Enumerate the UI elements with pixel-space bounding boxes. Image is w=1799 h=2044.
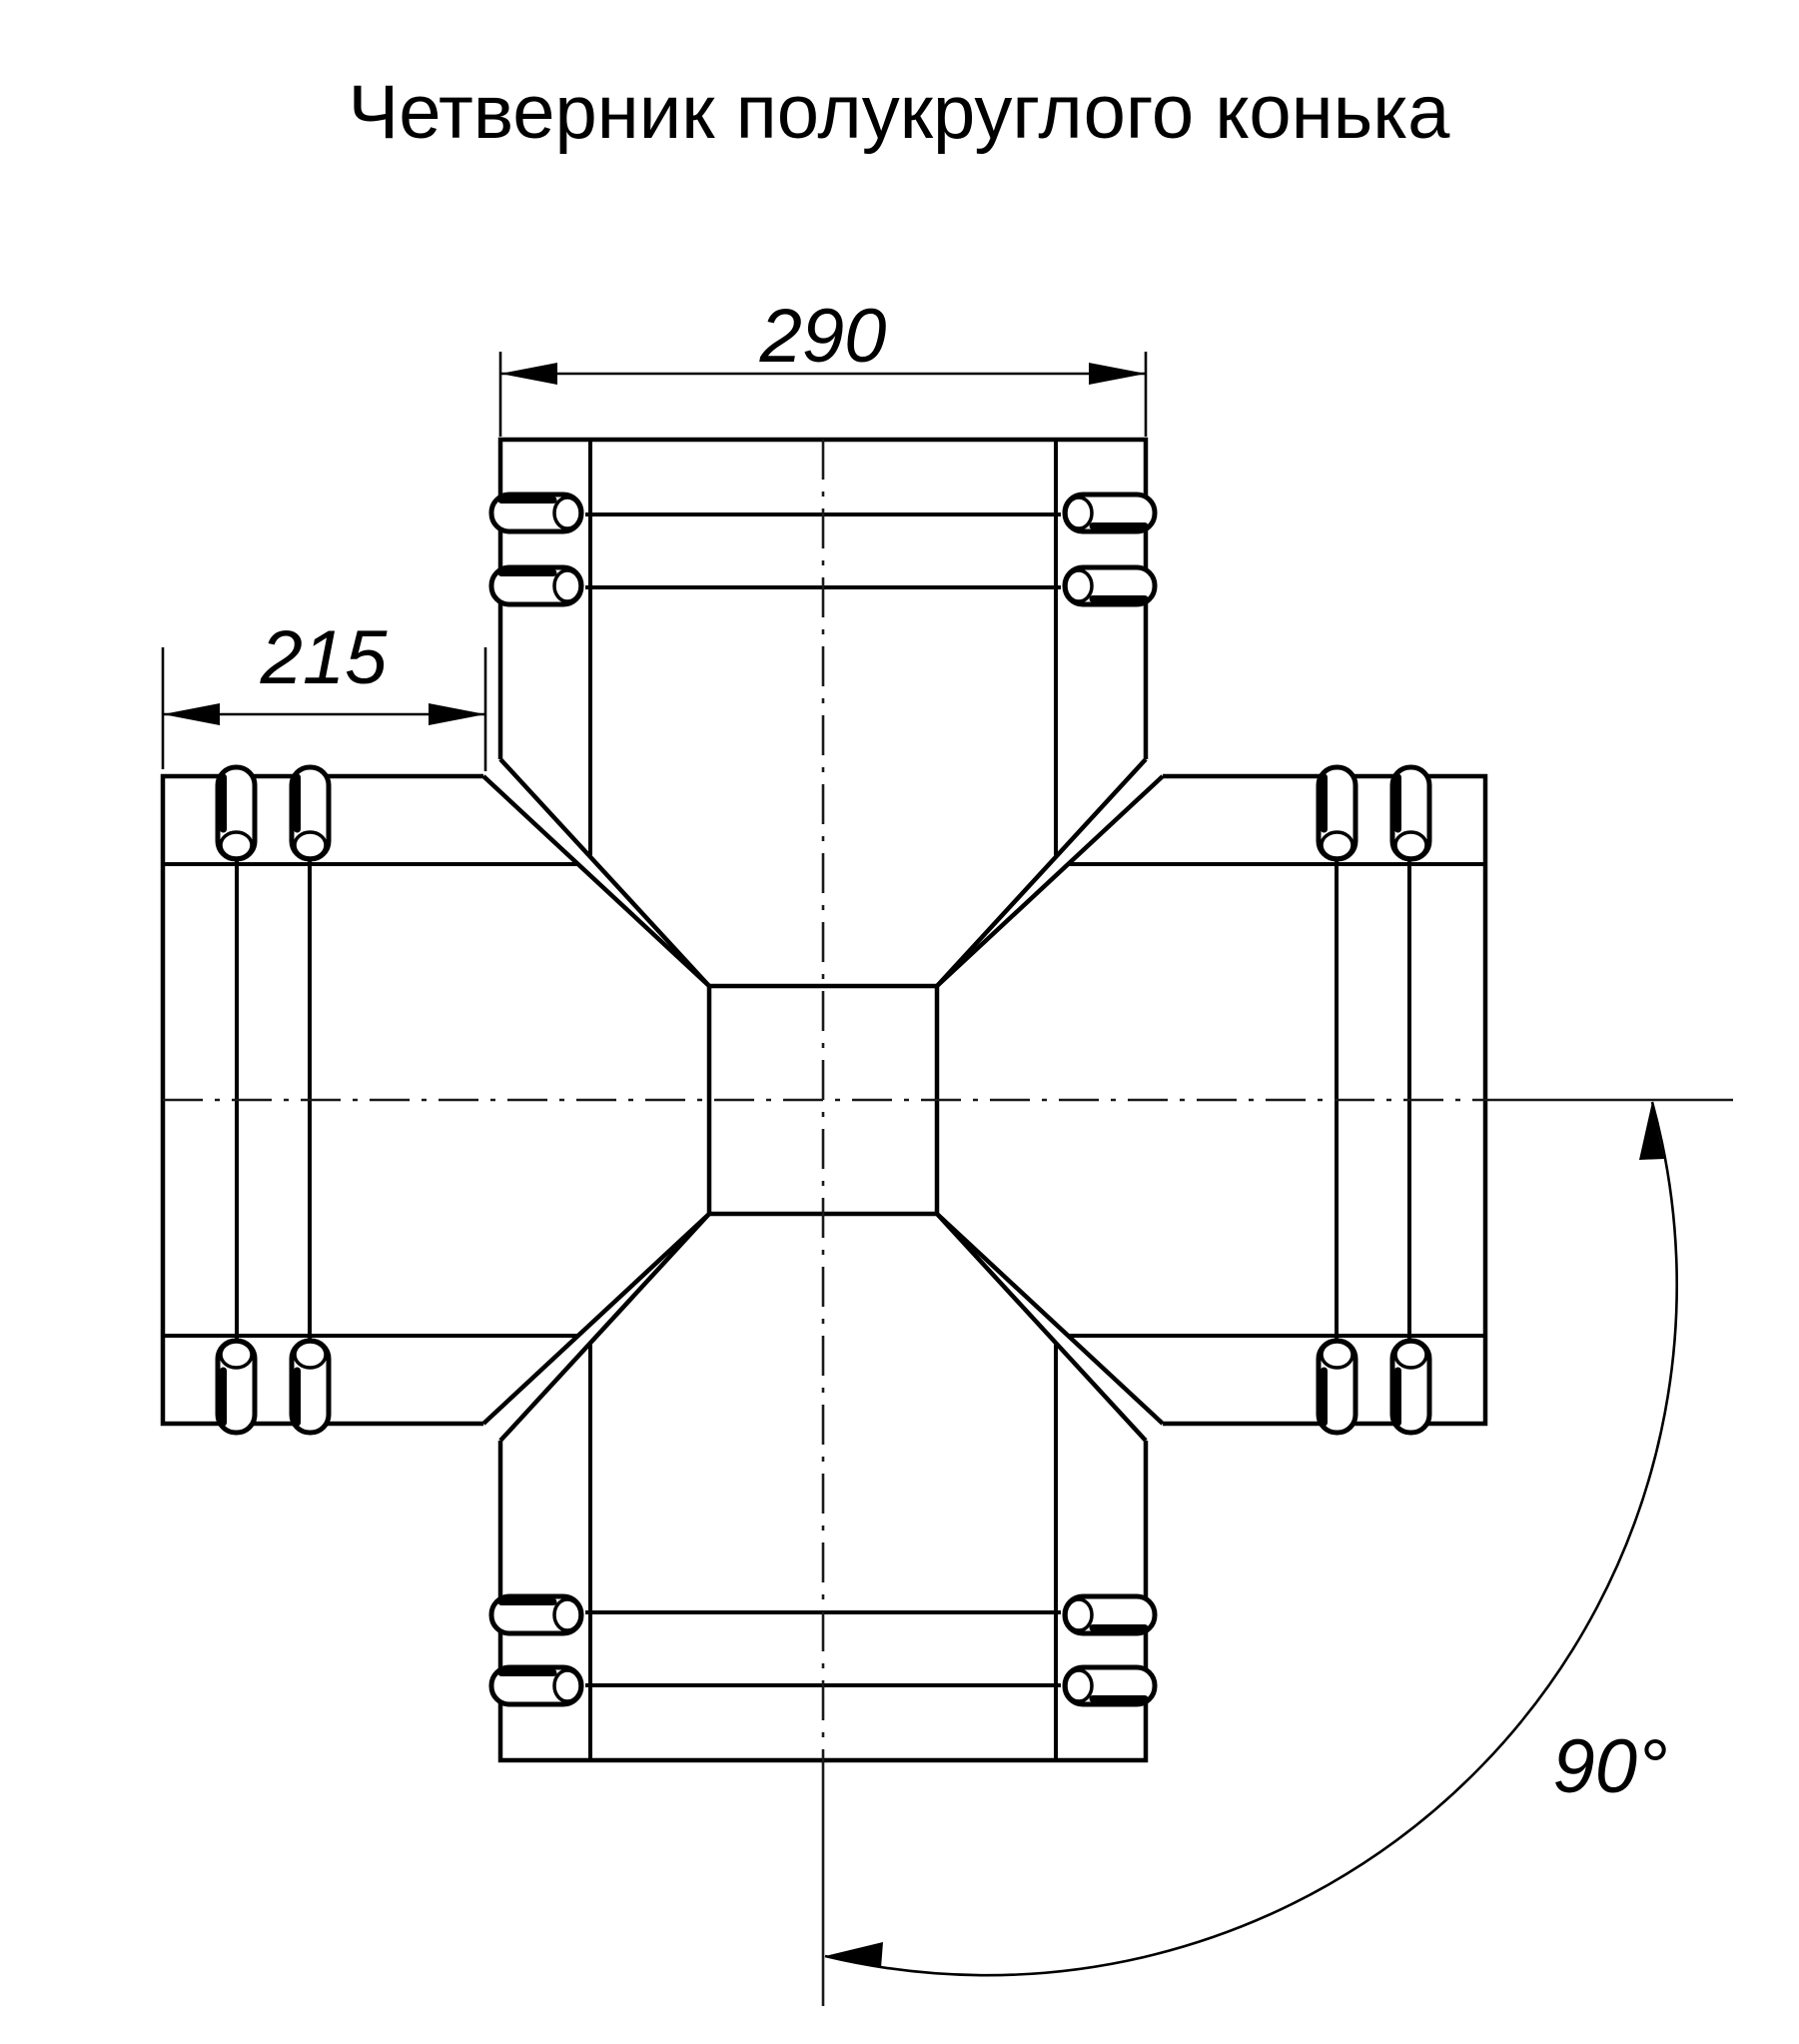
dimension-215: 215 xyxy=(163,615,485,771)
angle-label: 90° xyxy=(1553,1724,1668,1809)
tab xyxy=(1392,1341,1429,1433)
dimension-arrow-right-icon xyxy=(429,703,485,725)
page-title: Четверник полукруглого конька xyxy=(349,70,1451,155)
tab xyxy=(491,1667,581,1704)
tab xyxy=(1065,1667,1155,1704)
dimension-215-label: 215 xyxy=(260,615,389,700)
ridge-cross-drawing: 290 215 90° Четверник полукруглого коньк… xyxy=(0,0,1799,2044)
dimension-290-label: 290 xyxy=(759,294,887,379)
tab xyxy=(491,495,581,531)
tab xyxy=(218,767,255,859)
tab xyxy=(292,767,329,859)
tab xyxy=(491,567,581,604)
tab xyxy=(1319,1341,1355,1433)
dimension-arrow-left-icon xyxy=(163,703,220,725)
tab xyxy=(491,1596,581,1633)
tab xyxy=(1392,767,1429,859)
tab xyxy=(1319,767,1355,859)
tab xyxy=(1065,567,1155,604)
dimension-290: 290 xyxy=(500,294,1146,437)
tab xyxy=(218,1341,255,1433)
tab xyxy=(1065,495,1155,531)
arc-arrow-bottom-icon xyxy=(825,1942,883,1968)
tab xyxy=(292,1341,329,1433)
dimension-arrow-left-icon xyxy=(500,363,557,385)
technical-drawing-page: 290 215 90° Четверник полукруглого коньк… xyxy=(0,0,1799,2044)
tab xyxy=(1065,1596,1155,1633)
dimension-arrow-right-icon xyxy=(1089,363,1146,385)
